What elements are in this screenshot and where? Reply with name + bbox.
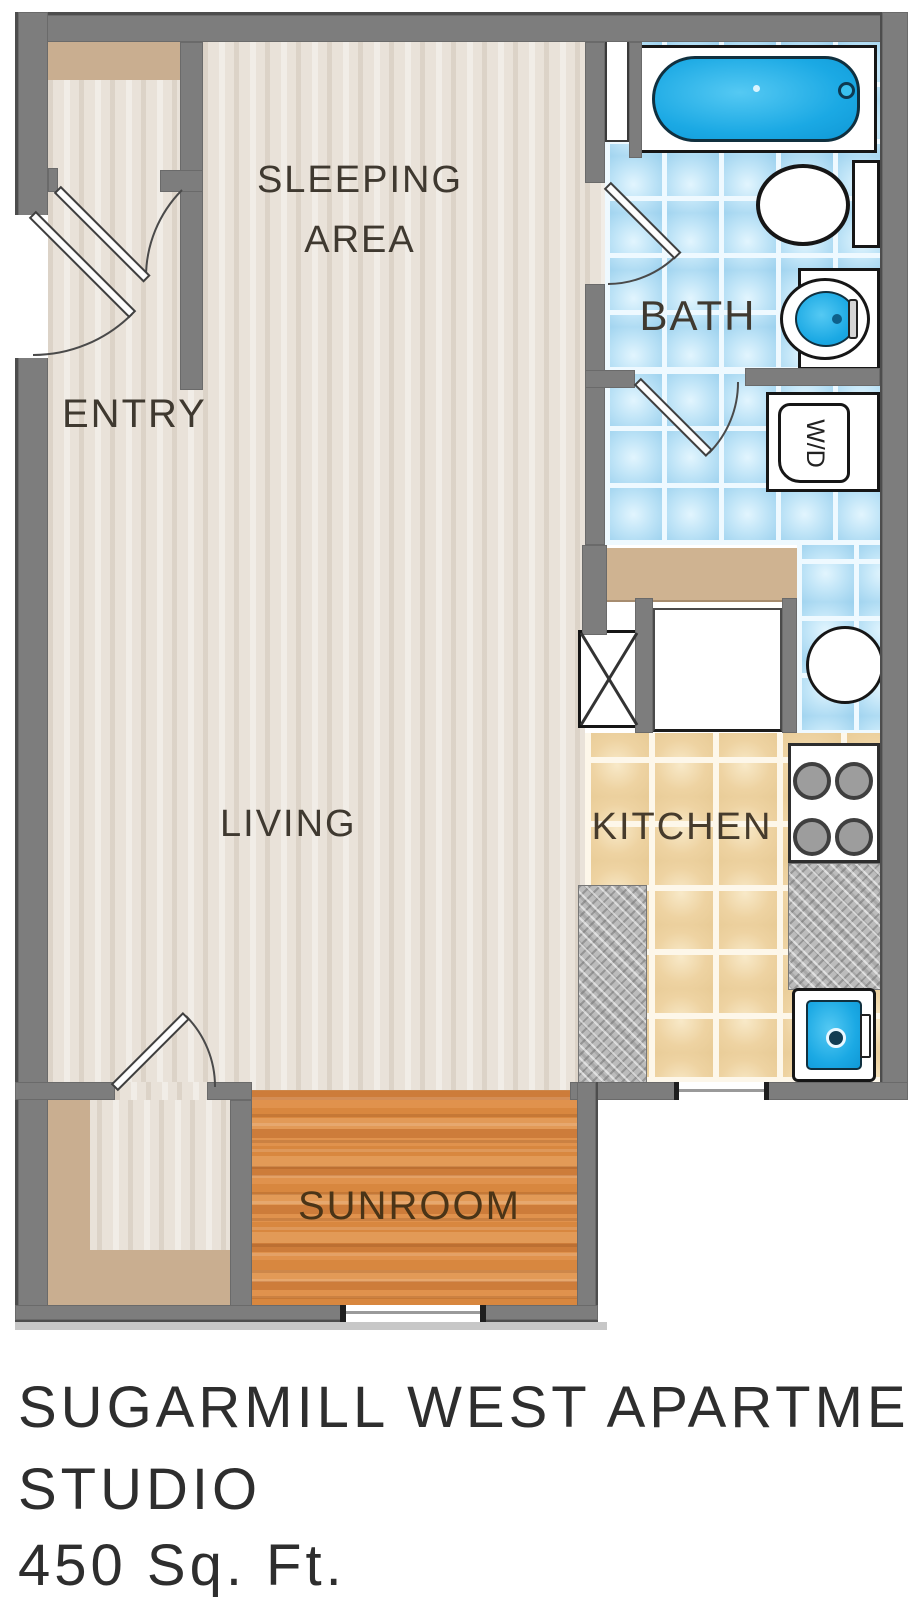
laundry-counter	[605, 548, 797, 602]
bath-door-gap-floor	[585, 183, 605, 284]
bathtub	[652, 56, 860, 142]
wall-top	[15, 12, 908, 42]
mechanical-closet	[578, 630, 640, 728]
kitchen-sink-faucet	[860, 1014, 871, 1058]
wall-entry-closet	[180, 42, 203, 390]
toilet-bowl	[756, 164, 850, 246]
wall-closet-left-stub	[48, 168, 58, 192]
exterior-shadow	[15, 1322, 607, 1330]
kitchen-window-cap	[764, 1082, 769, 1100]
washer-dryer: W/D	[778, 403, 850, 483]
bathtub-highlight	[753, 85, 760, 92]
sleeping-label-line1: SLEEPING	[220, 150, 500, 210]
wall-entry-closet-stub	[160, 170, 203, 192]
bath-sink-drain	[832, 314, 842, 324]
floor-plan: W/D	[0, 0, 910, 1600]
wall-fridge-right	[782, 598, 797, 733]
caption-title: SUGARMILL WEST APARTMENTS	[18, 1374, 910, 1441]
stove-burner	[835, 762, 873, 800]
caption-square-footage: 450 Sq. Ft.	[18, 1532, 346, 1599]
wall-closet-door-right	[207, 1082, 252, 1100]
bathtub-drain	[838, 82, 855, 99]
wall-bath-laundry-left	[585, 370, 635, 388]
wall-sunroom-left	[230, 1100, 252, 1322]
closet-door-gap-floor	[115, 1082, 207, 1100]
sunroom-window-cap	[480, 1305, 486, 1322]
washer-dryer-label: W/D	[799, 419, 828, 468]
wall-right	[880, 12, 908, 1100]
kitchen-counter-left	[578, 885, 647, 1085]
wall-closet-door-left	[15, 1082, 115, 1100]
living-label: LIVING	[220, 803, 357, 846]
wall-bath-west-lower	[585, 284, 605, 545]
walkin-closet-shelf-bottom	[35, 1250, 230, 1308]
wall-utility-block	[582, 545, 607, 635]
wall-sunroom-right	[577, 1082, 598, 1322]
sunroom-label: SUNROOM	[298, 1184, 508, 1229]
stove-burner	[793, 818, 831, 856]
wall-bottom	[15, 1305, 598, 1322]
entry-label: ENTRY	[62, 392, 207, 437]
caption-plan-type: STUDIO	[18, 1456, 261, 1523]
stove-burner	[835, 818, 873, 856]
sleeping-label-line2: AREA	[220, 210, 500, 270]
kitchen-label: KITCHEN	[588, 806, 776, 849]
kitchen-sink-drain	[826, 1028, 846, 1048]
wall-left	[15, 12, 48, 1322]
wall-fridge-left	[635, 598, 653, 733]
refrigerator	[653, 608, 782, 732]
sunroom-window-glass	[346, 1311, 480, 1314]
bath-sink-faucet	[848, 299, 858, 339]
entry-closet-shelf	[48, 42, 180, 80]
sleeping-area-label: SLEEPING AREA	[220, 150, 500, 270]
kitchen-counter-right	[788, 863, 882, 990]
toilet-tank	[852, 160, 880, 248]
wall-bath-west-upper	[585, 42, 605, 183]
wall-bath-laundry-right	[745, 368, 880, 386]
entry-door-opening	[15, 215, 48, 358]
bath-label: BATH	[628, 292, 768, 340]
stove-burner	[793, 762, 831, 800]
kitchen-window-glass	[679, 1089, 764, 1092]
water-heater	[806, 626, 884, 704]
wall-niche-east	[629, 42, 642, 158]
